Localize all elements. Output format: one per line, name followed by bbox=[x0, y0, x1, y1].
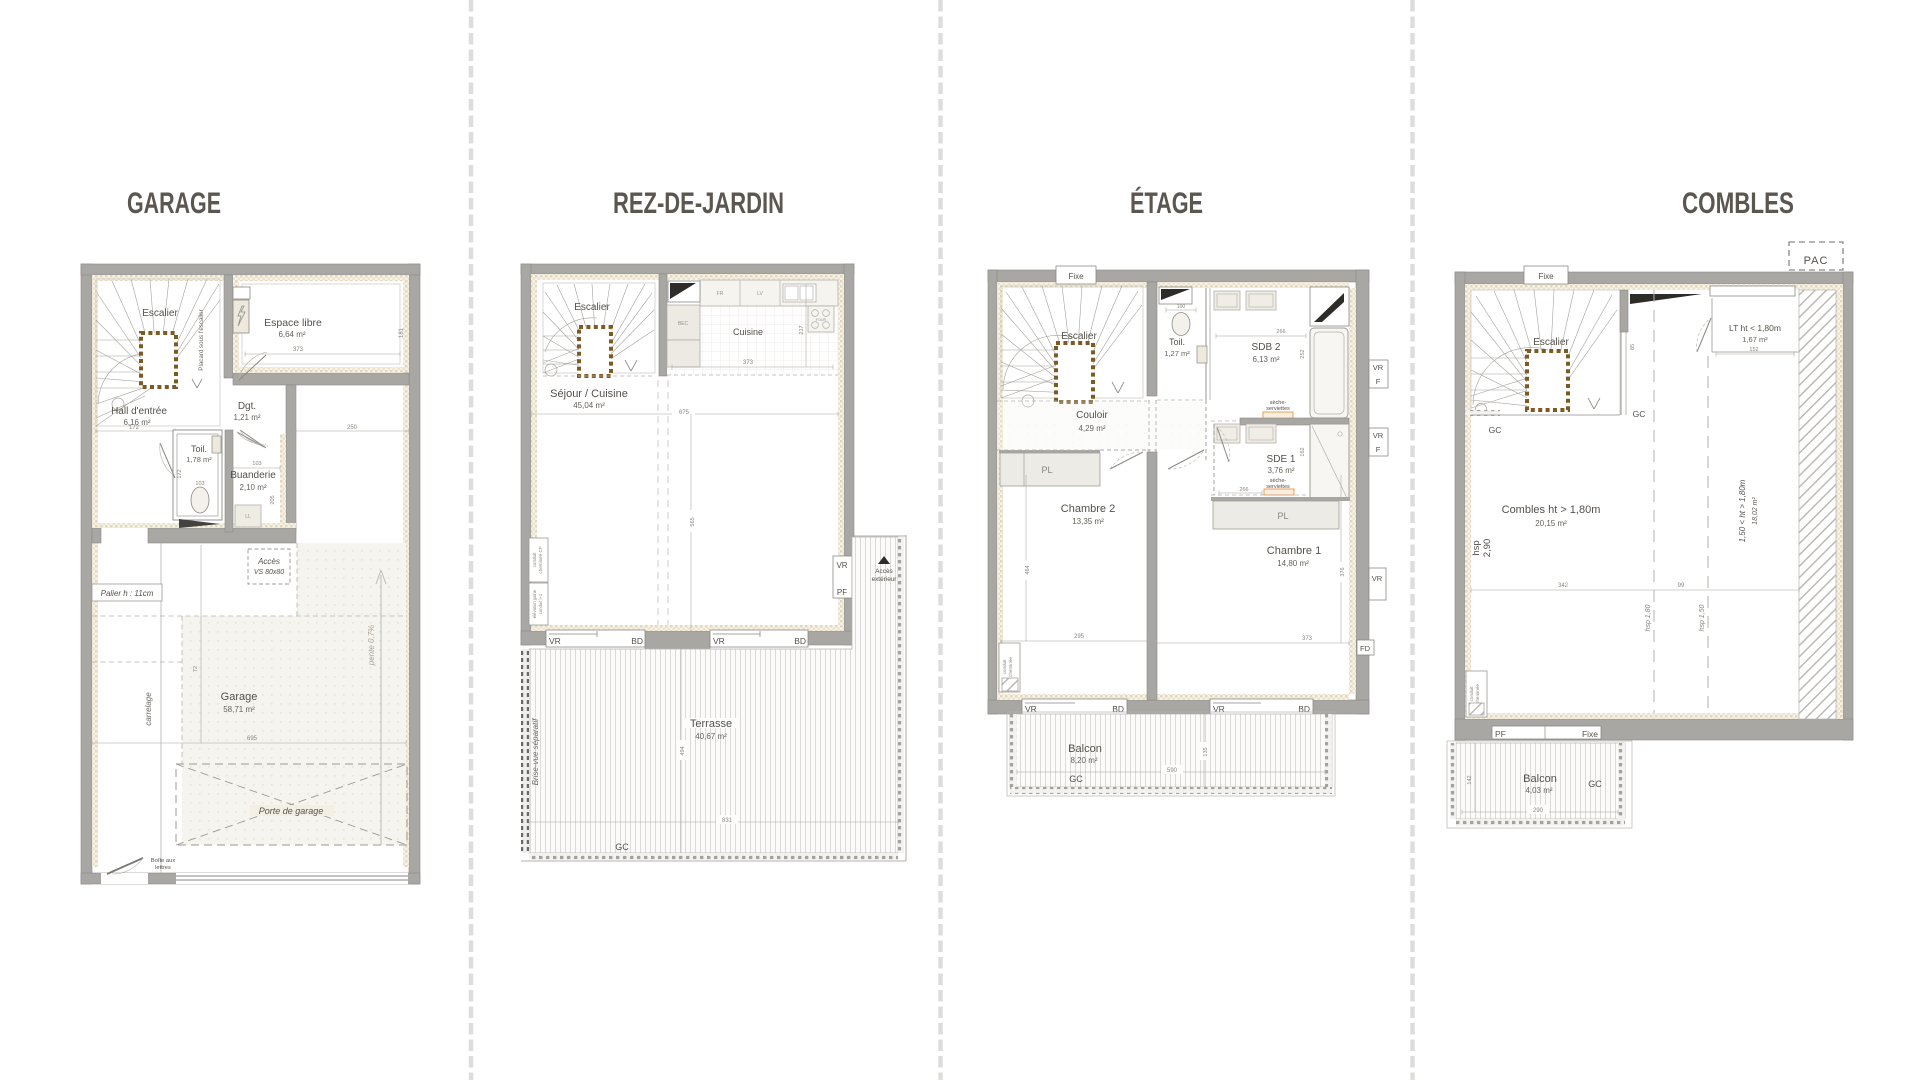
svg-text:Escalier: Escalier bbox=[142, 308, 178, 319]
svg-text:18,02 m²: 18,02 m² bbox=[1752, 497, 1759, 525]
svg-text:72: 72 bbox=[193, 666, 199, 672]
svg-text:Toil.: Toil. bbox=[1169, 337, 1185, 347]
svg-text:Couloir: Couloir bbox=[1076, 410, 1108, 421]
svg-text:BEC: BEC bbox=[678, 321, 689, 327]
svg-text:Palier h : 11cm: Palier h : 11cm bbox=[101, 589, 154, 598]
svg-text:Escalier: Escalier bbox=[1061, 331, 1097, 342]
svg-text:GC: GC bbox=[615, 842, 629, 852]
svg-text:45,04 m²: 45,04 m² bbox=[573, 401, 605, 410]
svg-text:85: 85 bbox=[1630, 344, 1636, 350]
svg-text:494: 494 bbox=[680, 746, 686, 755]
svg-text:373: 373 bbox=[1302, 636, 1313, 642]
svg-text:pente 0,7%: pente 0,7% bbox=[367, 625, 376, 666]
svg-text:1,67 m²: 1,67 m² bbox=[1742, 335, 1768, 344]
svg-text:142: 142 bbox=[1467, 775, 1473, 784]
svg-text:40,67 m²: 40,67 m² bbox=[695, 732, 727, 741]
svg-text:SDB 2: SDB 2 bbox=[1252, 342, 1281, 353]
svg-text:Dgt.: Dgt. bbox=[238, 401, 256, 412]
svg-text:1,21 m²: 1,21 m² bbox=[233, 413, 260, 422]
svg-text:103: 103 bbox=[195, 481, 204, 487]
svg-text:464: 464 bbox=[1025, 565, 1031, 574]
svg-text:2,90: 2,90 bbox=[1482, 539, 1493, 558]
svg-text:6,13 m²: 6,13 m² bbox=[1252, 355, 1279, 364]
svg-text:GC: GC bbox=[1588, 779, 1602, 789]
svg-text:Fixe: Fixe bbox=[1068, 272, 1084, 281]
svg-text:BD: BD bbox=[1298, 704, 1310, 714]
svg-text:VR: VR bbox=[1373, 431, 1384, 440]
svg-text:675: 675 bbox=[679, 410, 690, 416]
svg-text:181: 181 bbox=[399, 327, 405, 338]
svg-text:217: 217 bbox=[799, 325, 805, 334]
svg-text:F: F bbox=[1376, 445, 1381, 454]
svg-text:VR: VR bbox=[1213, 704, 1225, 714]
svg-text:Combles ht > 1,80m: Combles ht > 1,80m bbox=[1502, 504, 1601, 516]
svg-text:Garage: Garage bbox=[221, 691, 258, 703]
svg-text:conduit: conduit bbox=[1469, 686, 1474, 702]
svg-text:lettres: lettres bbox=[155, 865, 171, 871]
svg-text:342: 342 bbox=[1558, 583, 1569, 589]
svg-text:VS 80x80: VS 80x80 bbox=[254, 569, 284, 576]
svg-text:carrelage: carrelage bbox=[144, 692, 153, 726]
svg-text:590: 590 bbox=[1167, 768, 1178, 774]
svg-text:152: 152 bbox=[1749, 347, 1758, 353]
svg-text:BD: BD bbox=[631, 636, 643, 646]
svg-text:Accès: Accès bbox=[875, 568, 892, 575]
svg-text:4,03 m²: 4,03 m² bbox=[1525, 786, 1552, 795]
svg-text:Chambre 2: Chambre 2 bbox=[1061, 503, 1115, 515]
svg-text:172: 172 bbox=[129, 425, 140, 431]
svg-text:VR: VR bbox=[549, 636, 561, 646]
svg-text:135: 135 bbox=[1203, 747, 1209, 756]
svg-text:Escalier: Escalier bbox=[1533, 337, 1569, 348]
svg-text:PF: PF bbox=[837, 588, 847, 597]
svg-text:REZ-DE-JARDIN: REZ-DE-JARDIN bbox=[613, 187, 784, 220]
svg-text:172: 172 bbox=[177, 469, 183, 478]
svg-text:373: 373 bbox=[293, 347, 304, 353]
svg-text:PAC: PAC bbox=[1804, 255, 1829, 267]
svg-text:COMBLES: COMBLES bbox=[1682, 187, 1794, 220]
svg-text:6,64 m²: 6,64 m² bbox=[278, 330, 305, 339]
svg-text:hsp 1,50: hsp 1,50 bbox=[1699, 604, 1706, 631]
svg-text:Accès: Accès bbox=[257, 557, 280, 566]
svg-text:14,80 m²: 14,80 m² bbox=[1277, 559, 1309, 568]
svg-text:PL: PL bbox=[1277, 511, 1288, 521]
svg-text:LV: LV bbox=[757, 291, 763, 297]
svg-text:extérieur: extérieur bbox=[872, 576, 898, 583]
svg-text:cheminée: cheminée bbox=[1008, 657, 1013, 677]
svg-text:2,10 m²: 2,10 m² bbox=[239, 483, 266, 492]
svg-text:SDE 1: SDE 1 bbox=[1267, 454, 1296, 465]
svg-text:205: 205 bbox=[270, 495, 276, 504]
svg-text:Escalier: Escalier bbox=[574, 302, 610, 313]
svg-text:LL: LL bbox=[245, 514, 251, 520]
svg-text:conduit l+1: conduit l+1 bbox=[538, 593, 543, 614]
svg-text:Fixe: Fixe bbox=[1538, 272, 1554, 281]
svg-text:162: 162 bbox=[1300, 447, 1306, 456]
svg-text:290: 290 bbox=[1533, 808, 1544, 814]
svg-text:conduit: conduit bbox=[532, 552, 537, 568]
svg-text:hsp 1,80: hsp 1,80 bbox=[1645, 604, 1652, 631]
svg-text:250: 250 bbox=[347, 425, 358, 431]
svg-text:Fixe: Fixe bbox=[1582, 729, 1598, 739]
svg-text:99: 99 bbox=[1678, 583, 1685, 589]
svg-text:Balcon: Balcon bbox=[1068, 743, 1102, 755]
svg-text:BD: BD bbox=[794, 636, 806, 646]
svg-text:Terrasse: Terrasse bbox=[690, 718, 732, 730]
svg-text:FD: FD bbox=[1360, 644, 1371, 653]
svg-text:Balcon: Balcon bbox=[1523, 773, 1557, 785]
svg-text:252: 252 bbox=[1300, 349, 1306, 358]
svg-text:831: 831 bbox=[722, 818, 733, 824]
svg-text:Cuisine: Cuisine bbox=[733, 327, 763, 337]
svg-text:GC: GC bbox=[1069, 774, 1083, 784]
svg-text:PF: PF bbox=[1495, 729, 1506, 739]
svg-text:266: 266 bbox=[1276, 329, 1285, 335]
svg-text:conduit: conduit bbox=[1002, 659, 1007, 675]
svg-text:100: 100 bbox=[1177, 304, 1186, 310]
svg-text:373: 373 bbox=[743, 360, 754, 366]
svg-text:58,71 m²: 58,71 m² bbox=[223, 705, 255, 714]
svg-text:ÉTAGE: ÉTAGE bbox=[1130, 186, 1203, 220]
svg-text:1,27 m²: 1,27 m² bbox=[1164, 349, 1190, 358]
svg-text:695: 695 bbox=[247, 736, 258, 742]
svg-text:cheminée: cheminée bbox=[1475, 684, 1480, 704]
svg-text:VR: VR bbox=[1025, 704, 1037, 714]
svg-text:VR: VR bbox=[836, 561, 847, 570]
svg-text:Boîte aux: Boîte aux bbox=[151, 858, 176, 864]
svg-text:Toil.: Toil. bbox=[191, 444, 207, 454]
svg-text:BD: BD bbox=[1112, 704, 1124, 714]
svg-text:Séjour / Cuisine: Séjour / Cuisine bbox=[550, 388, 628, 400]
svg-text:1,78 m²: 1,78 m² bbox=[186, 455, 212, 464]
svg-text:1,50 < ht > 1,80m: 1,50 < ht > 1,80m bbox=[1738, 479, 1747, 542]
svg-text:565: 565 bbox=[690, 517, 696, 526]
svg-text:Buanderie: Buanderie bbox=[230, 470, 276, 481]
svg-text:F: F bbox=[1376, 377, 1381, 386]
svg-text:Placard sous l'escalier: Placard sous l'escalier bbox=[198, 309, 205, 370]
svg-text:VR: VR bbox=[1373, 363, 1384, 372]
svg-text:cheminée CF: cheminée CF bbox=[538, 546, 543, 574]
svg-text:PL: PL bbox=[1041, 465, 1052, 475]
svg-text:13,35 m²: 13,35 m² bbox=[1072, 517, 1104, 526]
svg-text:266: 266 bbox=[1239, 487, 1248, 493]
svg-text:GC: GC bbox=[1489, 425, 1502, 435]
svg-text:VR: VR bbox=[1372, 574, 1383, 583]
svg-text:8,20 m²: 8,20 m² bbox=[1070, 756, 1097, 765]
svg-text:hsp: hsp bbox=[1471, 540, 1482, 555]
svg-text:295: 295 bbox=[1074, 634, 1085, 640]
svg-text:20,15 m²: 20,15 m² bbox=[1535, 519, 1567, 528]
svg-text:GC: GC bbox=[1633, 409, 1646, 419]
svg-text:Hall d'entrée: Hall d'entrée bbox=[111, 406, 167, 417]
svg-text:Chambre 1: Chambre 1 bbox=[1267, 545, 1321, 557]
svg-text:376: 376 bbox=[1340, 567, 1346, 576]
svg-text:FR: FR bbox=[717, 291, 724, 297]
svg-text:serviettes: serviettes bbox=[1266, 406, 1290, 412]
svg-text:GARAGE: GARAGE bbox=[127, 187, 221, 220]
svg-text:3,76 m²: 3,76 m² bbox=[1267, 466, 1294, 475]
svg-text:FOUR: FOUR bbox=[816, 318, 827, 322]
svg-text:élévation gaine: élévation gaine bbox=[532, 589, 537, 618]
svg-text:Espace libre: Espace libre bbox=[264, 317, 322, 329]
svg-text:4,29 m²: 4,29 m² bbox=[1078, 424, 1105, 433]
svg-text:Brise-vue séparatif: Brise-vue séparatif bbox=[531, 718, 540, 785]
svg-text:103: 103 bbox=[252, 461, 261, 467]
svg-text:Porte de garage: Porte de garage bbox=[259, 806, 324, 816]
svg-text:VR: VR bbox=[713, 636, 725, 646]
svg-text:LT ht < 1,80m: LT ht < 1,80m bbox=[1729, 323, 1781, 333]
